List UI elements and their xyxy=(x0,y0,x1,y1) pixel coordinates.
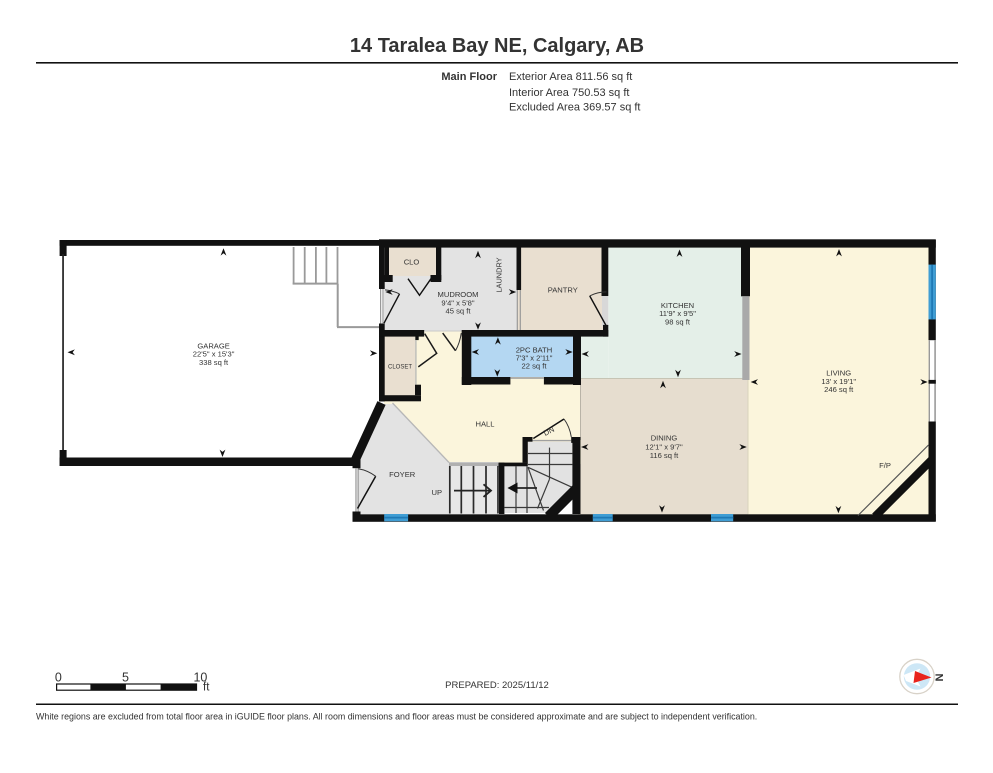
svg-text:PANTRY: PANTRY xyxy=(548,286,578,295)
svg-text:DINING: DINING xyxy=(651,433,678,442)
svg-text:CLOSET: CLOSET xyxy=(388,365,412,371)
svg-text:0: 0 xyxy=(55,671,62,685)
svg-text:ft: ft xyxy=(203,682,210,694)
svg-text:Main Floor: Main Floor xyxy=(441,71,497,83)
svg-text:White regions are excluded fro: White regions are excluded from total fl… xyxy=(36,712,757,722)
svg-text:FOYER: FOYER xyxy=(389,470,416,479)
svg-text:Excluded Area 369.57 sq ft: Excluded Area 369.57 sq ft xyxy=(509,102,640,114)
svg-text:45 sq ft: 45 sq ft xyxy=(446,307,472,316)
svg-text:116 sq ft: 116 sq ft xyxy=(650,451,679,460)
svg-text:22 sq ft: 22 sq ft xyxy=(522,361,548,370)
svg-text:246 sq ft: 246 sq ft xyxy=(824,385,854,394)
svg-text:HALL: HALL xyxy=(476,420,495,429)
svg-text:PREPARED: 2025/11/12: PREPARED: 2025/11/12 xyxy=(445,680,549,691)
svg-text:Exterior Area 811.56 sq ft: Exterior Area 811.56 sq ft xyxy=(509,71,632,83)
svg-text:Interior Area 750.53 sq ft: Interior Area 750.53 sq ft xyxy=(509,87,629,99)
svg-text:LAUNDRY: LAUNDRY xyxy=(495,257,504,292)
svg-text:338 sq ft: 338 sq ft xyxy=(199,358,229,367)
svg-text:CLO: CLO xyxy=(404,258,420,267)
svg-text:UP: UP xyxy=(432,488,443,497)
svg-text:12'1" x 9'7": 12'1" x 9'7" xyxy=(645,442,683,451)
svg-text:5: 5 xyxy=(122,671,129,685)
svg-text:F/P: F/P xyxy=(879,461,891,470)
svg-text:98 sq ft: 98 sq ft xyxy=(665,318,691,327)
svg-text:N: N xyxy=(933,674,945,682)
svg-text:14 Taralea Bay NE, Calgary, AB: 14 Taralea Bay NE, Calgary, AB xyxy=(350,35,644,57)
